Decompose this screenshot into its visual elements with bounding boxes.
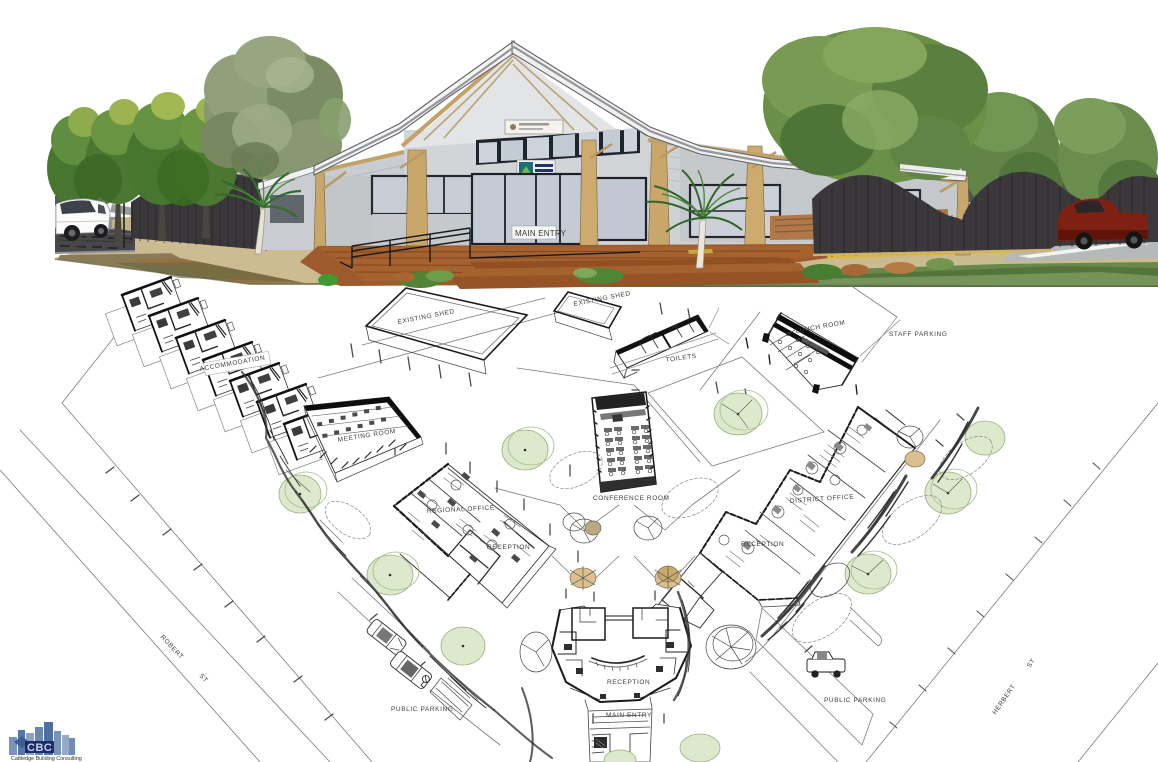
svg-text:MAIN ENTRY: MAIN ENTRY	[606, 712, 652, 719]
svg-text:RECEPTION: RECEPTION	[741, 541, 784, 548]
svg-text:MAIN ENTRY: MAIN ENTRY	[515, 229, 567, 238]
svg-text:CBC: CBC	[27, 742, 52, 754]
svg-text:Cattledge Building Consulting: Cattledge Building Consulting	[11, 756, 82, 762]
svg-text:RECEPTION: RECEPTION	[487, 544, 530, 551]
svg-text:STAFF PARKING: STAFF PARKING	[889, 331, 947, 338]
svg-text:PUBLIC PARKING: PUBLIC PARKING	[391, 706, 453, 713]
svg-text:CONFERENCE ROOM: CONFERENCE ROOM	[593, 495, 670, 502]
svg-text:PUBLIC PARKING: PUBLIC PARKING	[824, 697, 886, 704]
svg-text:RECEPTION: RECEPTION	[607, 679, 650, 686]
